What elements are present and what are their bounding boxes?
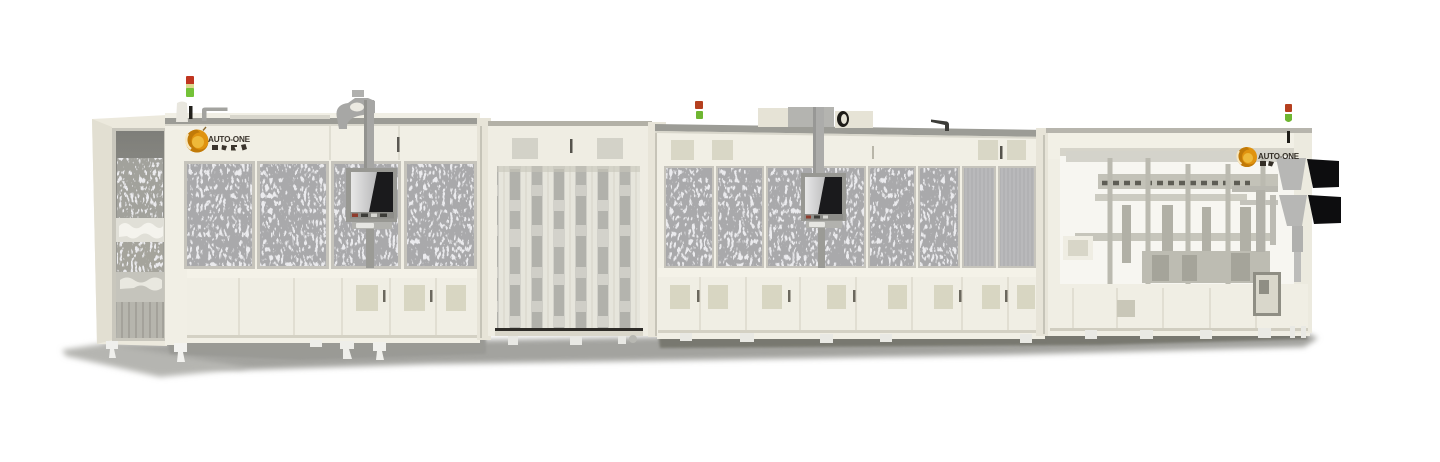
svg-text:AUTO-ONE: AUTO-ONE (208, 135, 251, 144)
svg-text:AUTO-ONE: AUTO-ONE (1258, 152, 1300, 161)
